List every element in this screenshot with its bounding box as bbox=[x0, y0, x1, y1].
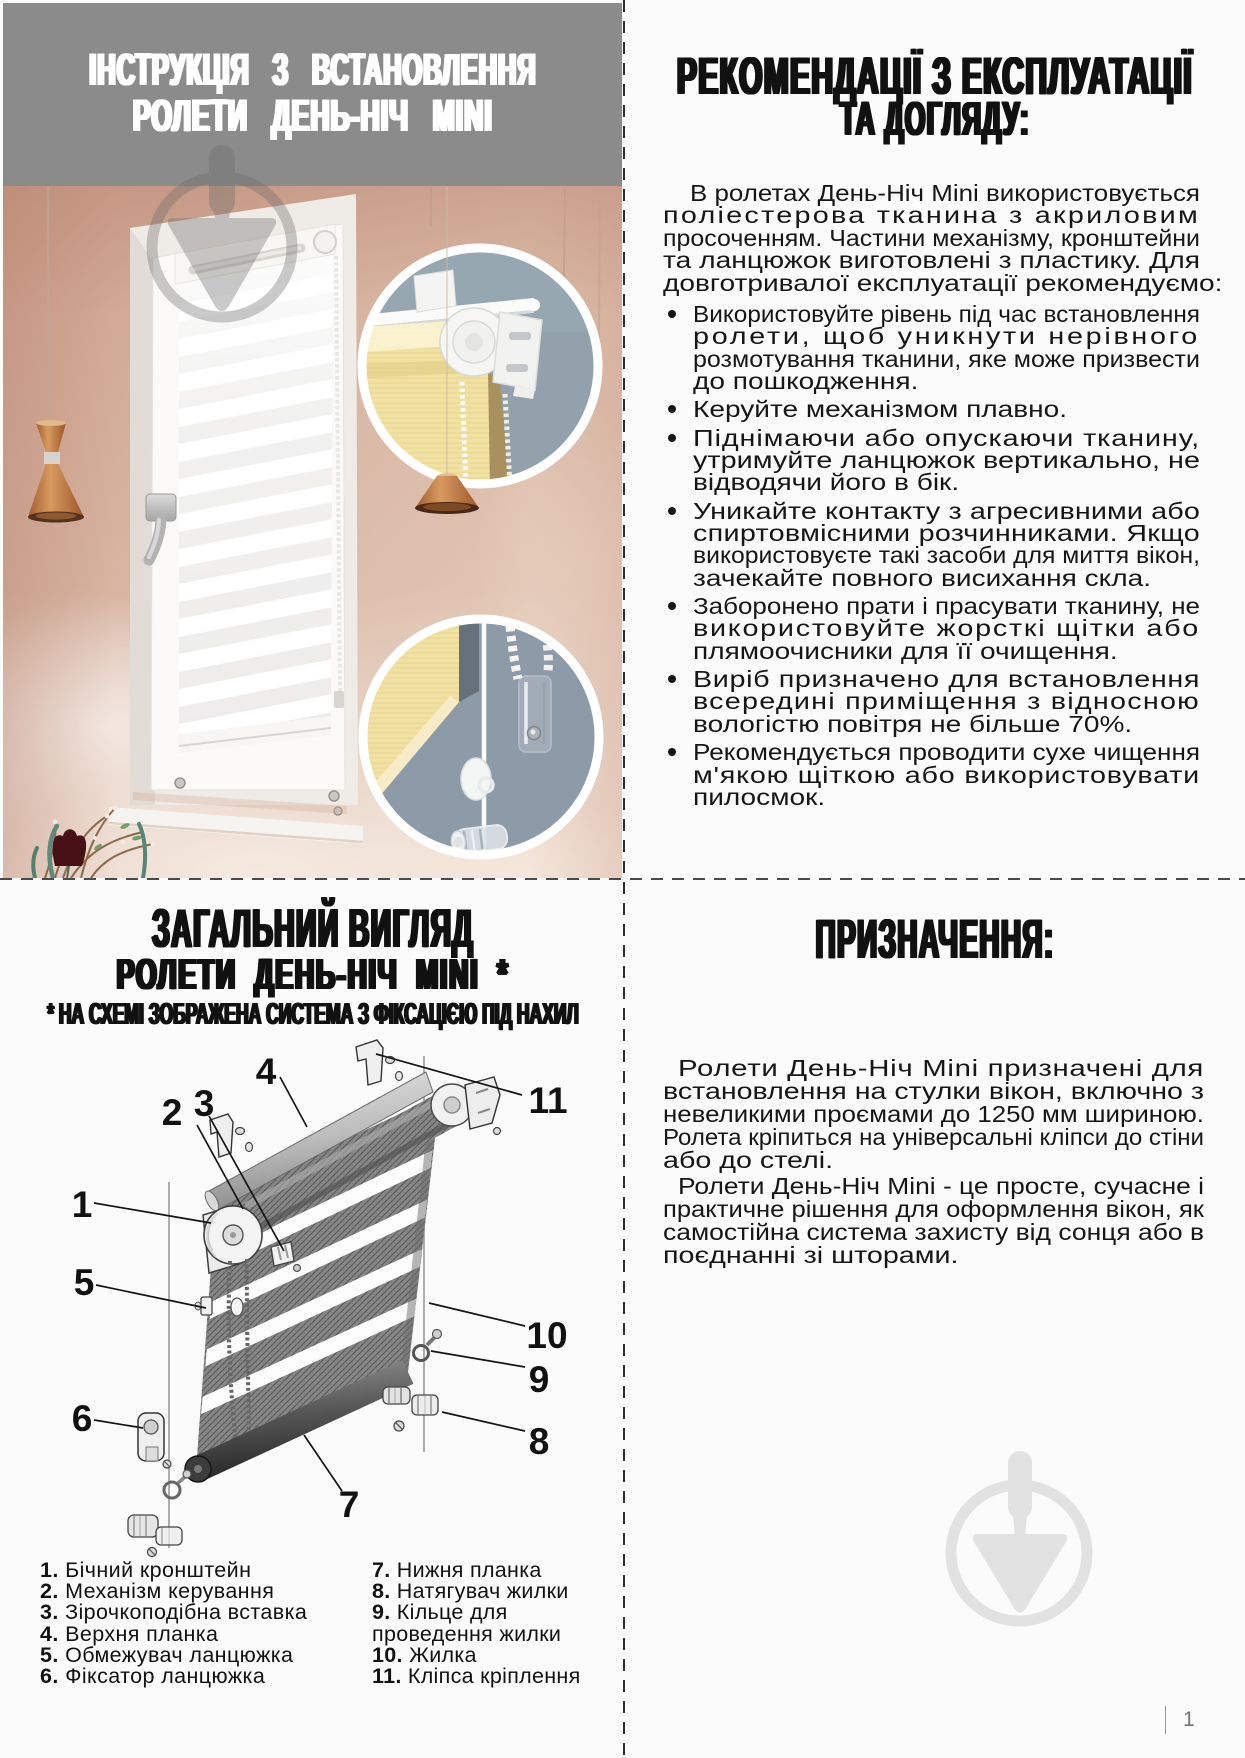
svg-text:7: 7 bbox=[339, 1484, 360, 1525]
svg-text:9: 9 bbox=[529, 1359, 550, 1400]
svg-text:10: 10 bbox=[526, 1315, 567, 1356]
svg-text:5: 5 bbox=[74, 1262, 95, 1303]
svg-text:6: 6 bbox=[72, 1398, 93, 1439]
svg-text:2: 2 bbox=[162, 1092, 183, 1133]
svg-text:11: 11 bbox=[528, 1080, 567, 1121]
svg-text:4: 4 bbox=[256, 1051, 277, 1092]
svg-text:8: 8 bbox=[529, 1421, 550, 1462]
svg-text:3: 3 bbox=[194, 1083, 215, 1124]
svg-text:1: 1 bbox=[72, 1184, 93, 1225]
